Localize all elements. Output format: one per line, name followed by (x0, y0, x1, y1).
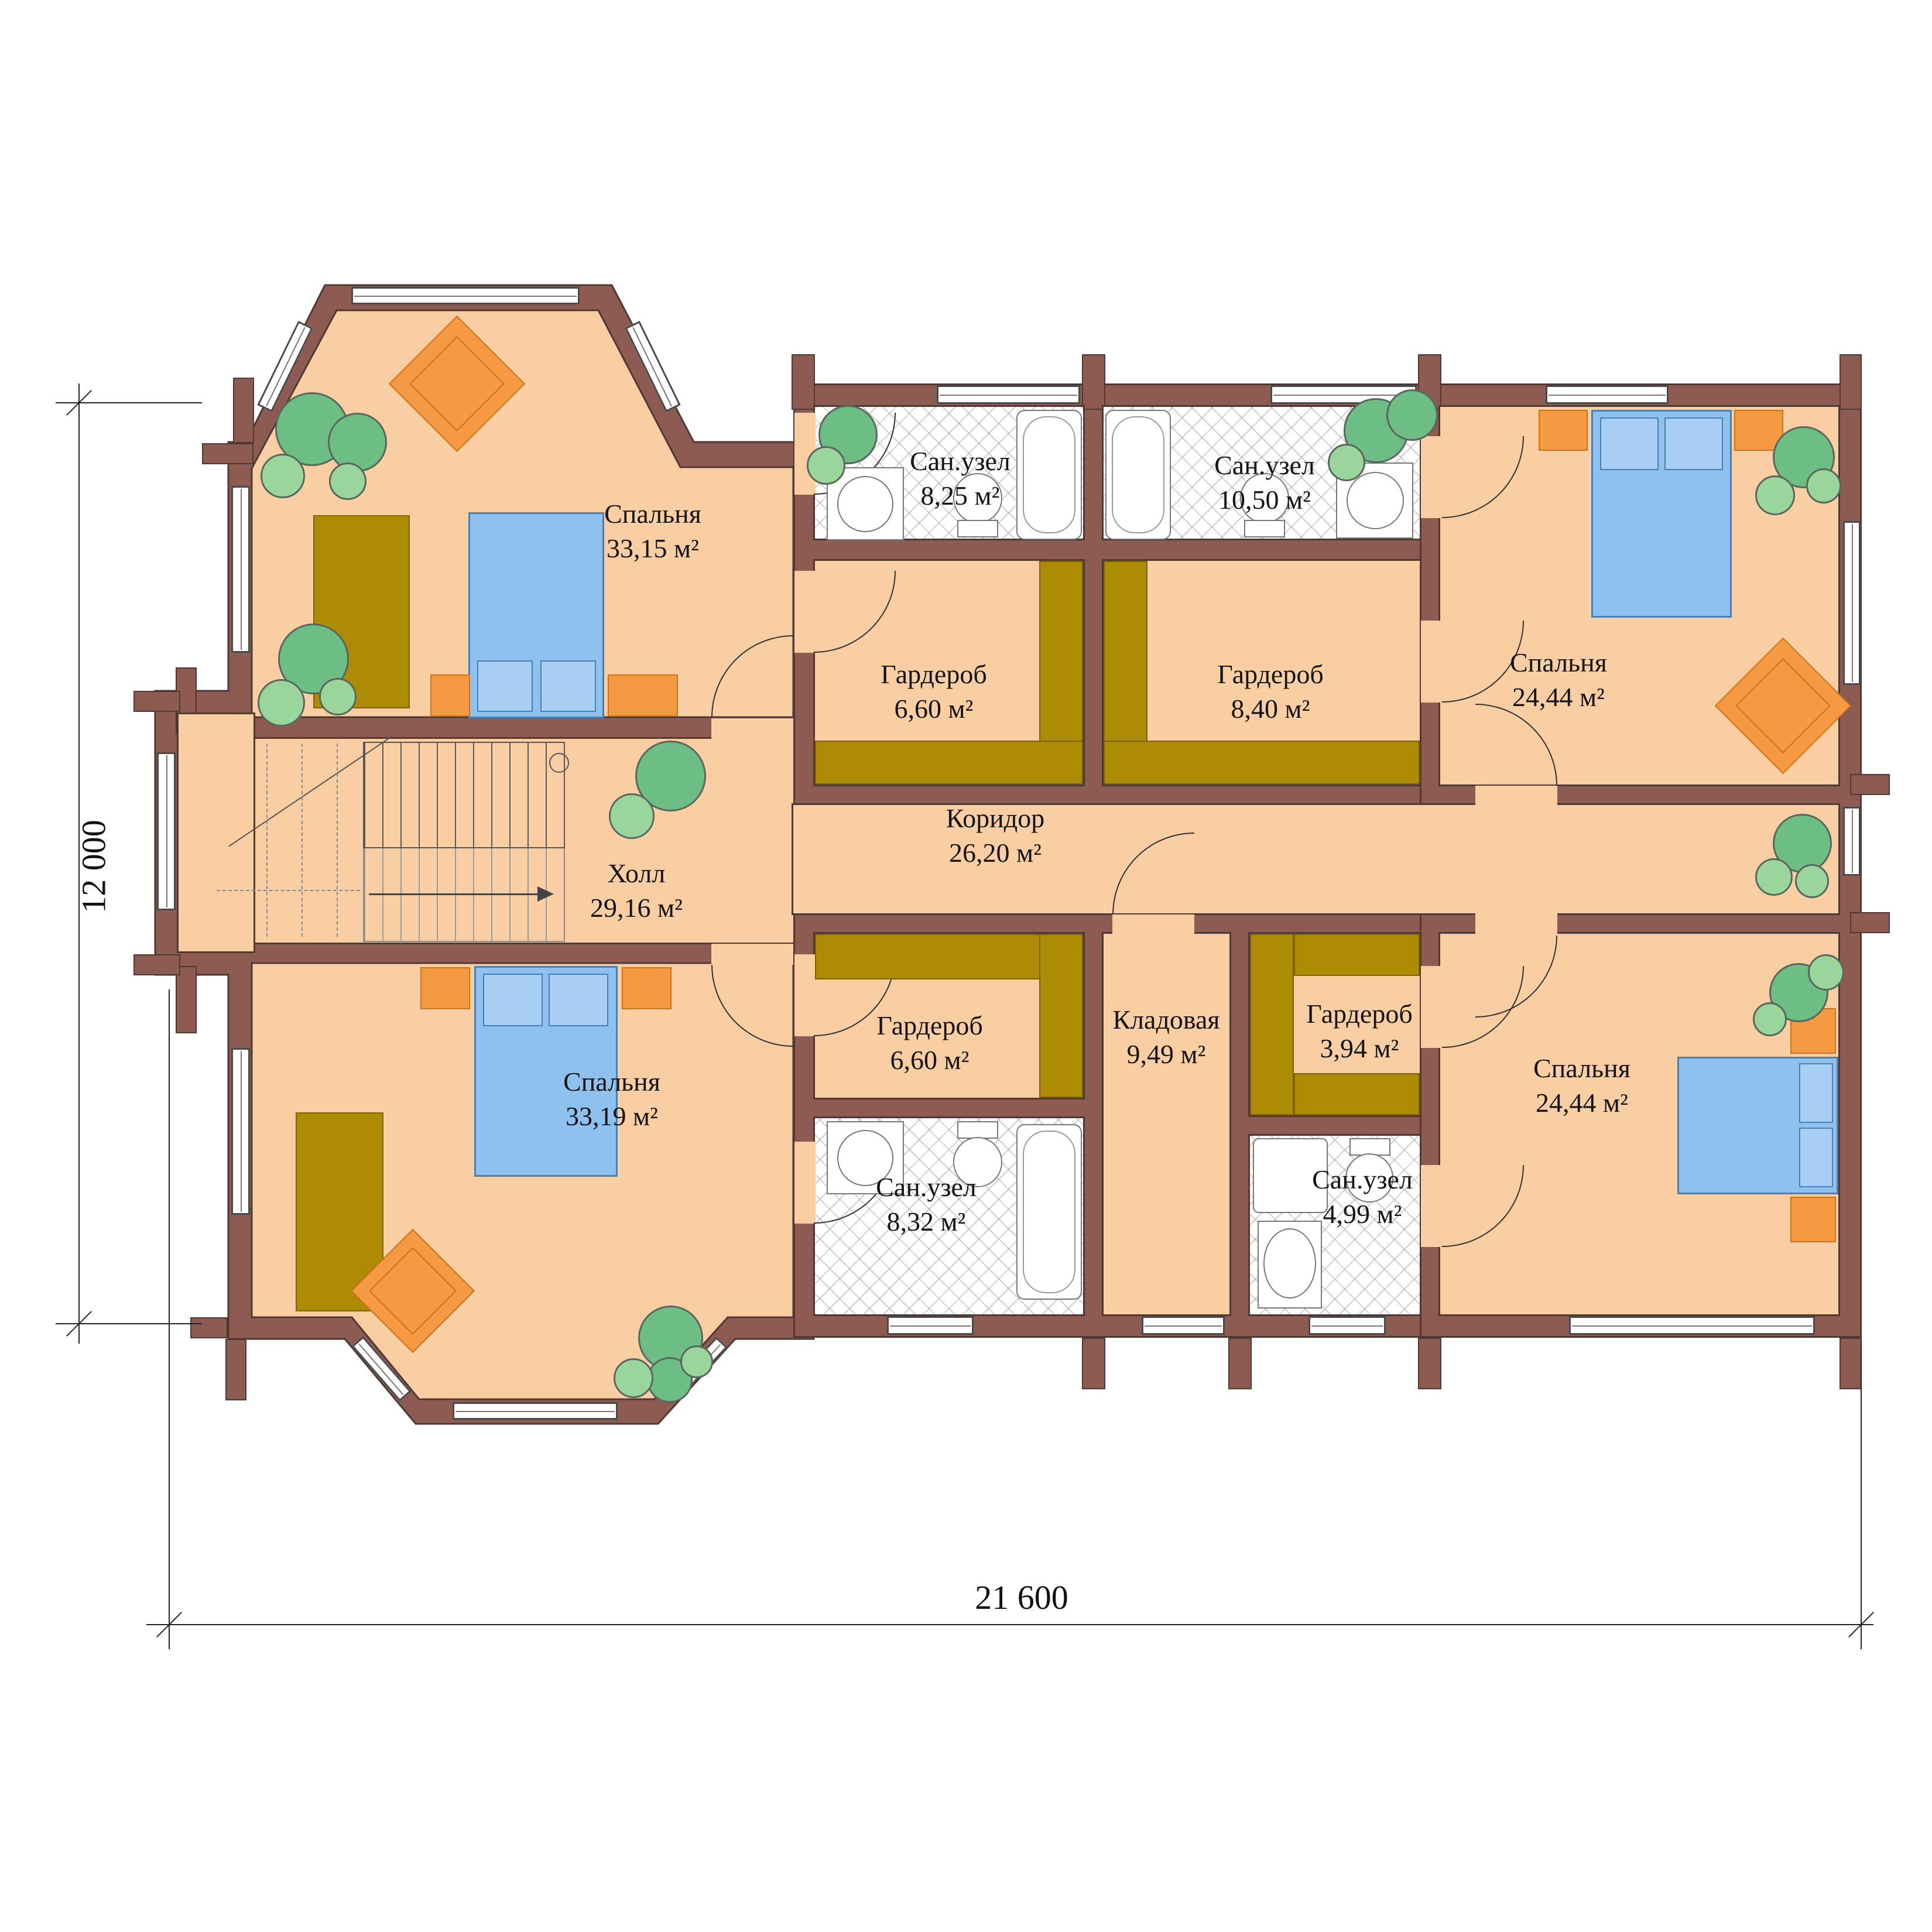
log-stub (133, 691, 180, 712)
room-label-bedroom-bottom-left: Спальня33,19 м² (563, 1065, 660, 1134)
dimension-label-width: 21 600 (975, 1578, 1068, 1617)
window (887, 1316, 974, 1335)
door-opening (1421, 621, 1442, 703)
room-label-bath-top-right: Сан.узел10,50 м² (1214, 448, 1315, 518)
room-label-bath-bottom-left: Сан.узел8,32 м² (876, 1170, 977, 1239)
log-stub (1228, 1338, 1252, 1389)
closet-strip (1250, 934, 1294, 1115)
sink-bowl (837, 476, 893, 532)
door-opening (1475, 786, 1557, 807)
closet-strip (1294, 934, 1420, 976)
log-stub (176, 966, 197, 1033)
sink-bowl (1263, 1228, 1316, 1299)
door-opening (711, 944, 793, 965)
stairwell-floor (179, 714, 254, 951)
window (231, 1048, 250, 1215)
window (1843, 521, 1861, 685)
window (1546, 385, 1669, 404)
window (1142, 1316, 1225, 1335)
nightstand (1790, 1197, 1836, 1242)
closet-strip (1039, 934, 1083, 1098)
door-opening (1421, 966, 1442, 1048)
bathtub (1016, 1124, 1082, 1300)
room-label-bath-bottom-right: Сан.узел4,99 м² (1312, 1163, 1413, 1232)
bed (1677, 1057, 1838, 1194)
log-stub (1082, 354, 1105, 410)
storage-floor (1104, 934, 1229, 1314)
door-opening (1421, 436, 1442, 518)
sink-bowl (1347, 472, 1404, 529)
door-opening (1475, 913, 1557, 936)
room-label-bedroom-top-left: Спальня33,15 м² (604, 497, 701, 566)
room-label-wardrobe-top-left: Гардероб6,60 м² (881, 657, 986, 727)
room-label-hall: Холл29,16 м² (590, 857, 683, 926)
room-label-storage: Кладовая9,49 м² (1112, 1003, 1220, 1072)
log-stub (190, 1317, 228, 1338)
closet-strip (1294, 1073, 1420, 1115)
door-opening (1421, 1165, 1442, 1247)
log-stub (792, 354, 815, 410)
log-stub (1418, 1338, 1441, 1389)
closet-strip (815, 741, 1083, 785)
nightstand (622, 967, 672, 1009)
window (1843, 807, 1861, 876)
room-label-bath-top-left: Сан.узел8,25 м² (910, 444, 1010, 513)
closet-strip (1104, 741, 1420, 785)
window (453, 1402, 618, 1420)
bed (468, 512, 604, 718)
room-label-wardrobe-top-right: Гардероб8,40 м² (1217, 657, 1323, 727)
door-opening (794, 954, 816, 1036)
log-stub (233, 378, 254, 443)
room-label-wardrobe-bottom-left: Гардероб6,60 м² (876, 1009, 982, 1078)
toilet-tank (957, 520, 998, 537)
nightstand (608, 674, 678, 717)
window (231, 486, 250, 653)
door-opening (1112, 914, 1194, 936)
log-stub (1839, 354, 1862, 410)
bed (1591, 410, 1732, 618)
dimension-label-height: 12 000 (74, 820, 114, 913)
nightstand (420, 967, 470, 1009)
door-opening (711, 718, 793, 741)
window (937, 385, 1080, 404)
window (1308, 1316, 1386, 1335)
log-stub (1850, 912, 1890, 933)
window (1569, 1316, 1815, 1335)
toilet-tank (1244, 520, 1285, 537)
bathtub (1016, 410, 1082, 540)
log-stub (1850, 774, 1890, 795)
room-label-bedroom-top-right: Спальня24,44 м² (1510, 646, 1607, 715)
log-stub (225, 1339, 246, 1400)
log-stub (202, 443, 254, 464)
stairs-newel-circle (549, 753, 569, 773)
stairs-direction-arrow (369, 893, 539, 895)
toilet-tank (957, 1121, 998, 1139)
nightstand (1539, 410, 1588, 451)
door-opening (794, 571, 816, 653)
room-label-bedroom-bottom-right: Спальня24,44 м² (1533, 1051, 1630, 1121)
window (157, 752, 176, 910)
log-stub (133, 954, 180, 975)
room-label-wardrobe-bottom-right: Гардероб3,94 м² (1306, 997, 1412, 1066)
bathtub (1105, 410, 1171, 540)
nightstand (430, 674, 470, 717)
floor-plan: Спальня33,15 м² Сан.узел8,25 м² Сан.узел… (0, 0, 1932, 1932)
log-stub (1839, 1338, 1862, 1389)
door-opening (794, 1142, 816, 1224)
room-label-corridor: Коридор26,20 м² (946, 801, 1044, 871)
window (351, 287, 580, 304)
log-stub (1082, 1338, 1105, 1389)
